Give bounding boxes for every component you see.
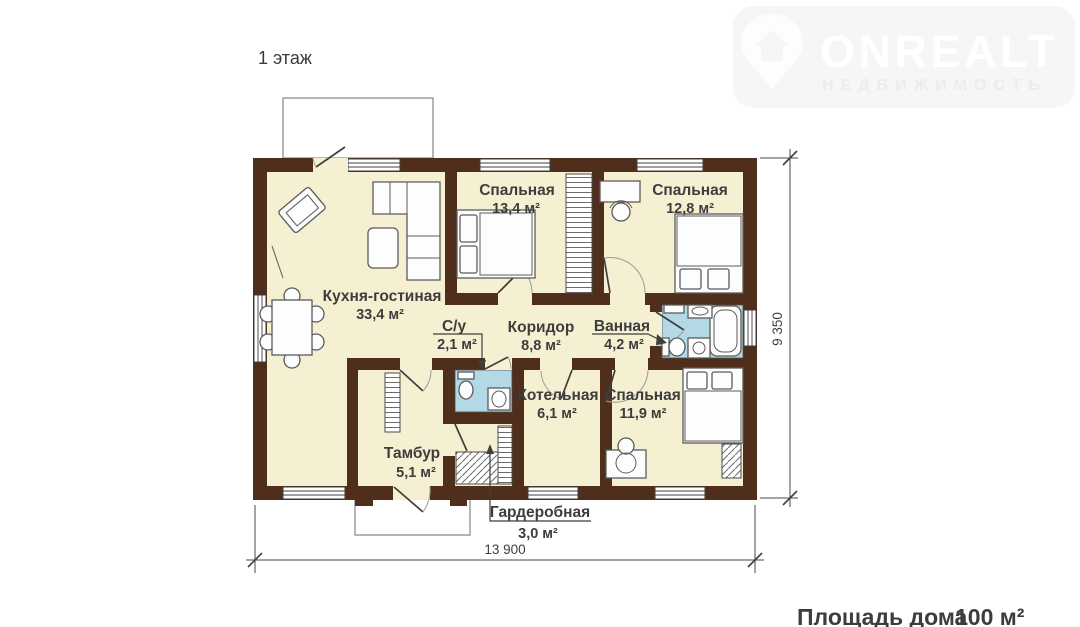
watermark-brand: ONREALT [820,26,1059,77]
watermark-logo: ONREALT НЕДВИЖИМОСТЬ [733,6,1075,108]
footer-area-summary: Площадь дома 100 м² [797,604,1025,627]
window [744,310,756,346]
svg-text:Кухня-гостиная: Кухня-гостиная [323,288,442,305]
svg-text:Спальная: Спальная [605,387,681,404]
dresser-bedroom-11 [722,444,741,478]
window [283,487,345,499]
svg-text:Котельная: Котельная [517,387,598,404]
svg-text:Спальная: Спальная [479,182,555,199]
bed-13 [457,210,535,278]
closet-bedroom-13 [566,174,592,293]
wardrobe-floor-hatch [456,452,498,484]
svg-text:Гардеробная: Гардеробная [490,504,590,521]
bath-toilet [662,338,685,356]
bath-shelf [664,305,684,313]
bathtub [710,306,741,356]
svg-text:12,8 м²: 12,8 м² [666,201,714,217]
svg-text:Спальная: Спальная [652,182,728,199]
svg-text:6,1 м²: 6,1 м² [537,406,577,422]
watermark-tagline: НЕДВИЖИМОСТЬ [822,77,1047,94]
floor-plan-canvas: ONREALT НЕДВИЖИМОСТЬ 1 этаж [0,0,1080,627]
door-wc [485,357,512,370]
footer-label: Площадь дома [797,604,968,627]
vestibule-ladder [385,373,400,432]
window [637,159,703,171]
svg-text:2,1 м²: 2,1 м² [437,337,477,353]
svg-text:8,8 м²: 8,8 м² [521,338,561,354]
washing-machine [688,338,710,358]
svg-text:33,4 м²: 33,4 м² [356,307,404,323]
bath-sink [688,305,712,318]
footer-value: 100 м² [955,604,1025,627]
svg-text:С/у: С/у [442,318,467,335]
wardrobe-shelves [498,426,512,484]
svg-text:4,2 м²: 4,2 м² [604,337,644,353]
window [348,159,400,171]
window [254,295,266,362]
window [528,487,578,499]
terrace [283,98,433,158]
wc-toilet [458,372,474,399]
svg-text:Коридор: Коридор [508,319,575,336]
bed-12 [675,214,743,293]
dimension-height: 9 350 [760,149,798,507]
wc-sink [488,388,510,410]
svg-text:5,1 м²: 5,1 м² [396,465,436,481]
dimension-width-label: 13 900 [484,542,525,557]
svg-text:13,4 м²: 13,4 м² [492,201,540,217]
svg-text:Тамбур: Тамбур [384,445,440,462]
coffee-table [368,228,398,268]
floor-plan-page: ONREALT НЕДВИЖИМОСТЬ 1 этаж [0,0,1080,627]
bed-11 [683,368,743,443]
svg-text:3,0 м²: 3,0 м² [518,526,558,542]
window [480,159,550,171]
svg-text:Ванная: Ванная [594,318,650,335]
page-title: 1 этаж [258,48,312,68]
window [655,487,705,499]
dimension-height-label: 9 350 [770,312,785,346]
svg-text:11,9 м²: 11,9 м² [619,406,666,422]
